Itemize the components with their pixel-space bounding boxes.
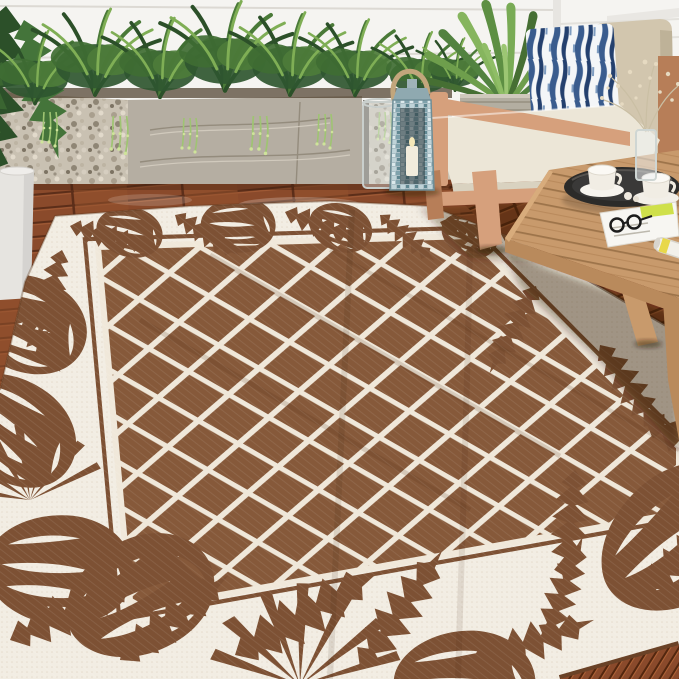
candle-flame [409, 137, 415, 147]
deck-sheen [108, 194, 192, 206]
candle [406, 146, 418, 176]
stone-planter [128, 96, 362, 198]
lantern-cap [393, 88, 431, 100]
glass-vase [636, 130, 656, 180]
product-photo [0, 0, 679, 679]
ikat-pillow [525, 23, 619, 119]
